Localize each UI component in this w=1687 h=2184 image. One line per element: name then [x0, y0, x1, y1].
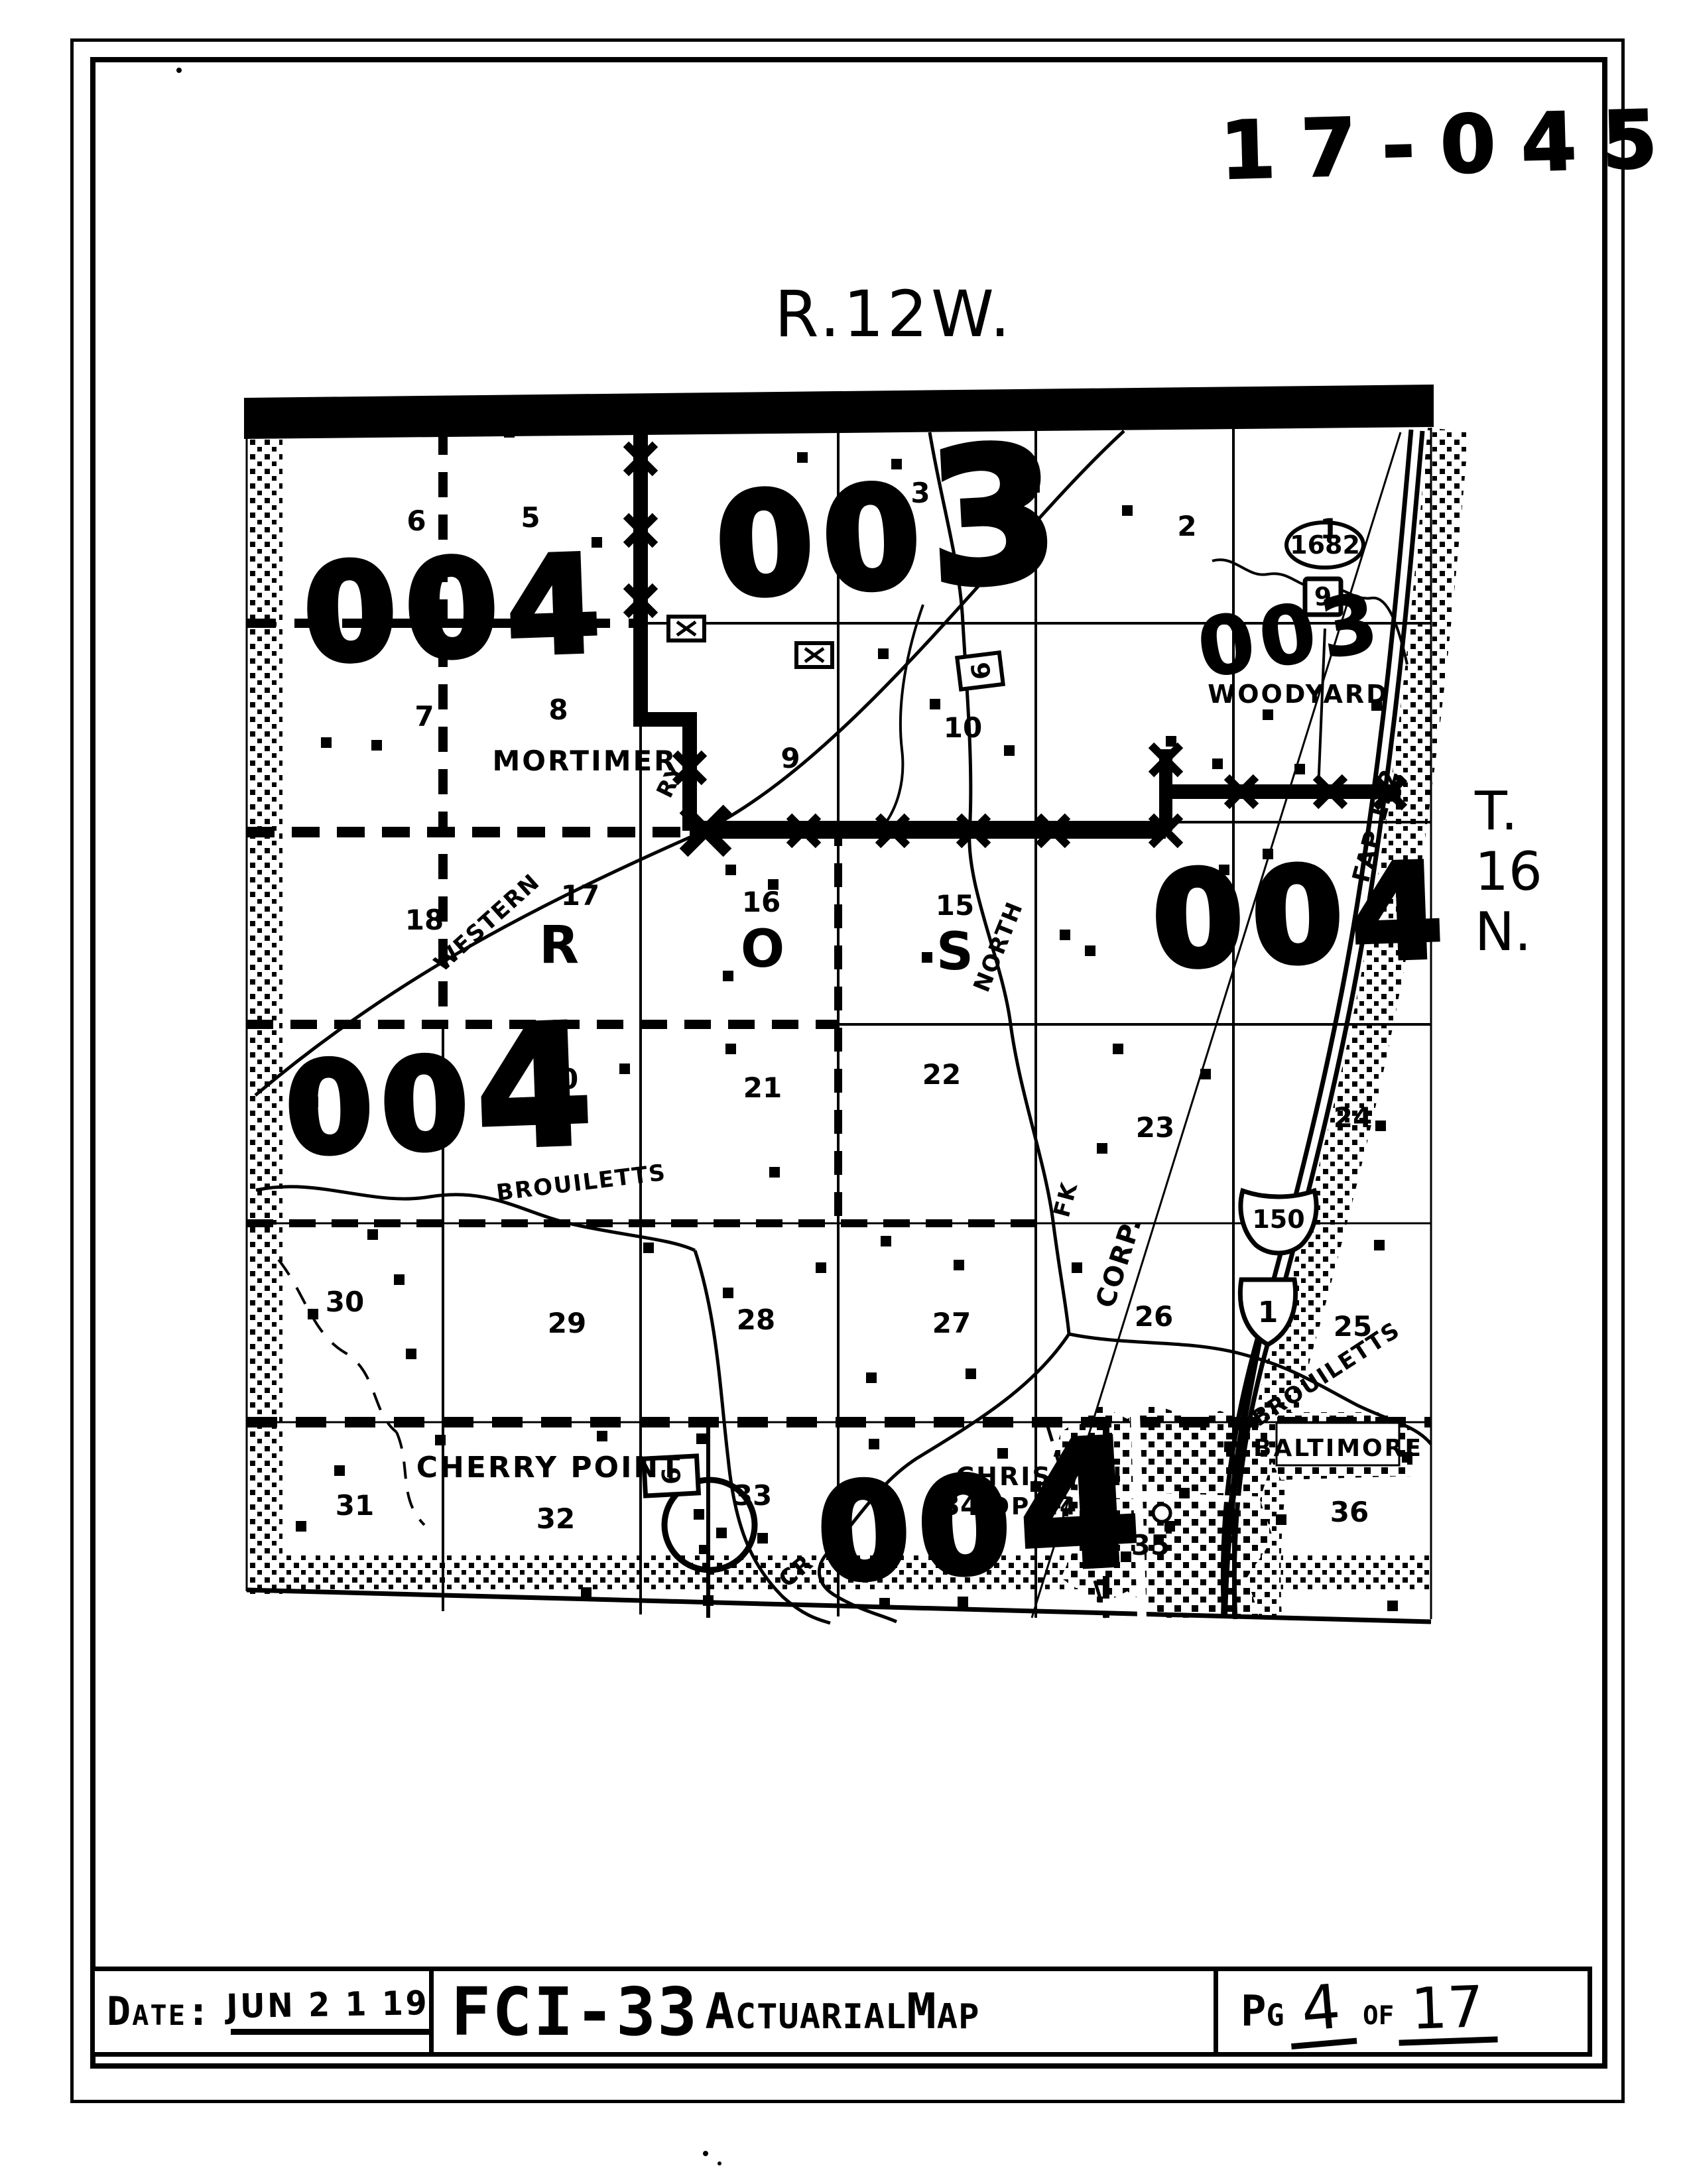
feature-label-western: WESTERN — [429, 869, 546, 977]
farm-building-square — [1375, 1121, 1386, 1131]
farm-building-square — [966, 1368, 976, 1379]
zone-stamp-004-south: 004 — [813, 1416, 1153, 1608]
farm-building-square — [703, 1595, 714, 1606]
feature-label-fk: FK — [1048, 1179, 1084, 1220]
state-route-1-label: 1 — [1258, 1296, 1279, 1329]
zone-stamp-003-north: 003 — [711, 420, 1072, 624]
section-number-27: 27 — [932, 1307, 971, 1339]
footer-title-cell: FCI-33 ActuarialMap — [429, 1967, 1218, 2057]
place-label-mortimer: MORTIMER — [492, 745, 677, 777]
farm-building-square — [643, 1243, 654, 1253]
farm-building-square — [367, 1229, 378, 1240]
section-number-25: 25 — [1334, 1310, 1372, 1343]
route-shield-9-rotated-mortimer: 9 — [957, 652, 1003, 689]
section-number-32: 32 — [536, 1502, 575, 1535]
farm-building-square — [1113, 1044, 1123, 1054]
farm-building-square — [881, 1236, 891, 1246]
farm-building-square — [1179, 1488, 1190, 1498]
farm-building-square — [816, 1262, 826, 1273]
farm-building-square — [922, 952, 932, 963]
farm-building-square — [723, 971, 733, 981]
farm-building-square — [334, 1465, 345, 1476]
section-number-9: 9 — [781, 742, 800, 774]
township-letter-s: S — [936, 922, 973, 982]
farm-building-square — [504, 427, 515, 438]
section-number-16: 16 — [742, 886, 781, 918]
route-shield-9-rotated-label: 9 — [965, 660, 996, 682]
farm-building-square — [1224, 1441, 1235, 1452]
scan-speck — [176, 68, 182, 73]
farm-building-square — [1097, 1143, 1107, 1154]
farm-building-square — [1085, 945, 1095, 956]
farm-building-square — [371, 740, 382, 751]
date-label: Date: — [107, 1988, 212, 2035]
zone-stamp-004-northwest: 004 — [302, 538, 611, 682]
farm-building-square — [1276, 1514, 1286, 1525]
page-total: 17 — [1397, 1977, 1498, 2046]
farm-building-square — [1200, 1069, 1211, 1079]
farm-building-square — [597, 1431, 607, 1441]
feature-label-north: NORTH — [968, 898, 1029, 996]
section-number-26: 26 — [1135, 1300, 1173, 1333]
township-letter-o: O — [741, 920, 784, 979]
section-number-7: 7 — [414, 700, 434, 733]
farm-building-square — [308, 1309, 318, 1319]
farm-building-square — [1263, 709, 1273, 720]
us-route-150-label: 150 — [1252, 1205, 1304, 1234]
brouiletts-creek-west — [256, 1187, 695, 1250]
farm-building-square — [1060, 930, 1070, 940]
farm-building-square — [930, 699, 940, 709]
scan-speck — [703, 2151, 708, 2156]
farm-building-square — [581, 1587, 592, 1598]
section-number-6: 6 — [406, 505, 426, 537]
township-map-canvas: 1682 9 9 9 150 1 MORTIMER WOODYARD CHERR… — [0, 0, 1687, 2184]
page-number: 4 — [1285, 1974, 1356, 2049]
farm-building-square — [878, 648, 889, 659]
section-number-22: 22 — [922, 1058, 961, 1091]
farm-building-square — [1004, 745, 1015, 756]
farm-building-square — [1212, 758, 1223, 769]
farm-building-square — [1122, 505, 1133, 516]
zone-stamp-004-west: 004 — [282, 1002, 603, 1178]
zone-stamp-004-east: 004 — [1151, 846, 1454, 987]
farm-building-square — [725, 1044, 736, 1054]
date-underline — [231, 2029, 460, 2035]
monument-symbol — [668, 617, 704, 640]
footer-date-cell: Date: JUN 2 1 1989 — [90, 1967, 434, 2057]
section-number-10: 10 — [944, 711, 982, 744]
farm-building-square — [723, 1288, 733, 1298]
farm-building-square — [725, 865, 736, 875]
place-label-baltimore: BALTIMORE — [1253, 1435, 1423, 1462]
farm-building-square — [406, 1349, 416, 1359]
farm-building-square — [757, 1533, 768, 1544]
farm-building-square — [769, 1167, 780, 1178]
section-number-8: 8 — [548, 694, 568, 726]
farm-building-square — [394, 1274, 405, 1285]
farm-building-square — [619, 1063, 630, 1074]
town-circle — [1153, 1504, 1170, 1522]
page-label: Pg — [1241, 1987, 1284, 2036]
section-number-21: 21 — [743, 1071, 782, 1104]
section-number-15: 15 — [936, 889, 974, 922]
farm-building-square — [954, 1260, 964, 1270]
place-label-cherry-point: CHERRY POINT — [416, 1451, 682, 1485]
footer-page-cell: Pg 4 of 17 — [1214, 1967, 1592, 2057]
farm-building-square — [696, 1433, 707, 1444]
footer-bar: Date: JUN 2 1 1989 FCI-33 ActuarialMap P… — [90, 1967, 1597, 2057]
us-route-150-shield: 150 — [1241, 1191, 1316, 1253]
feature-label-corp: CORP. — [1090, 1213, 1148, 1312]
farm-building-square — [866, 1372, 877, 1383]
farm-building-square — [1294, 764, 1305, 774]
farm-building-square — [435, 1435, 446, 1445]
form-name: ActuarialMap — [705, 1983, 979, 2040]
scan-speck — [718, 2161, 721, 2165]
farm-building-square — [1387, 1601, 1398, 1611]
farm-building-square — [321, 737, 332, 748]
section-number-30: 30 — [326, 1286, 364, 1318]
of-label: of — [1363, 1990, 1394, 2033]
section-number-18: 18 — [405, 904, 444, 936]
section-number-23: 23 — [1136, 1111, 1174, 1144]
section-number-33: 33 — [733, 1479, 772, 1512]
farm-building-square — [296, 1521, 306, 1532]
farm-building-square — [1166, 736, 1176, 747]
farm-building-square — [1374, 1240, 1385, 1250]
section-number-17: 17 — [561, 879, 599, 912]
township-letter-r: R — [539, 916, 579, 975]
section-number-28: 28 — [737, 1304, 775, 1336]
section-number-31: 31 — [336, 1489, 374, 1522]
section-number-1: 1 — [1320, 513, 1339, 545]
section-number-29: 29 — [548, 1307, 586, 1339]
section-number-24: 24 — [1334, 1101, 1372, 1134]
scanned-actuarial-map-page: { "page": { "map_id": "17-045", "range_l… — [0, 0, 1687, 2184]
farm-building-square — [1072, 1262, 1082, 1273]
section-number-2: 2 — [1177, 510, 1196, 542]
form-code: FCI-33 — [451, 1973, 698, 2051]
section-number-36: 36 — [1330, 1496, 1369, 1528]
monument-symbol — [796, 643, 832, 667]
